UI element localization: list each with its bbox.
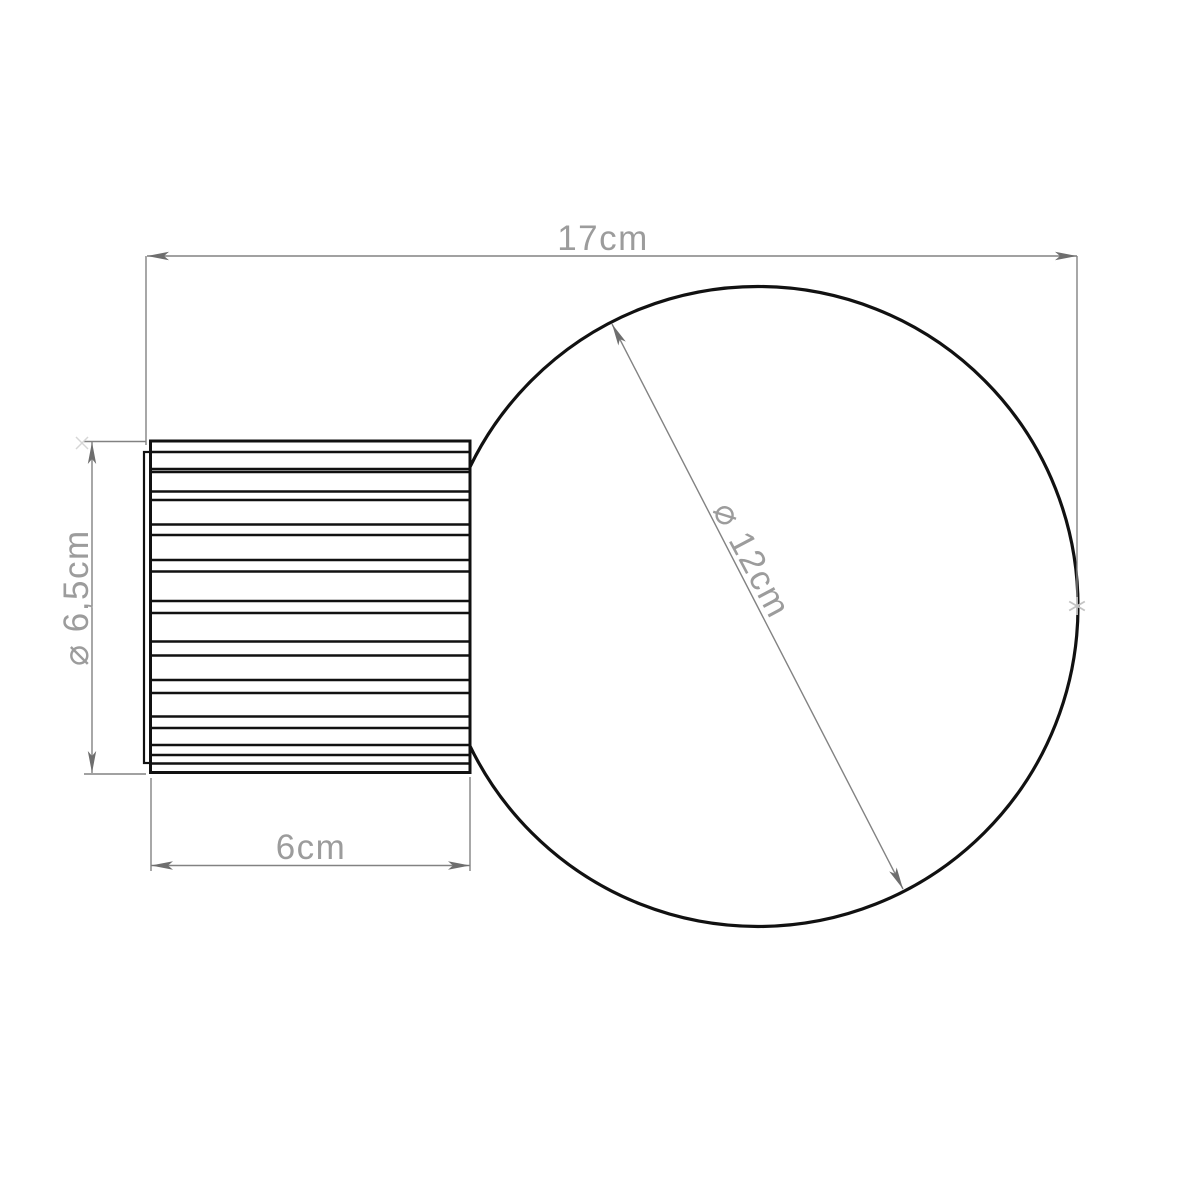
dimension-label-base-depth: 6cm bbox=[276, 828, 347, 867]
snap-star-icon bbox=[1069, 597, 1085, 615]
dimension-base-diameter: ⌀ 6,5cm bbox=[57, 442, 146, 775]
dimension-base-depth: 6cm bbox=[151, 777, 470, 871]
dimension-label-globe-diameter: ⌀ 12cm bbox=[705, 495, 798, 624]
technical-drawing-page: 17cm ⌀ 6,5cm 6cm ⌀ 12cm bbox=[0, 0, 1200, 1200]
dimension-globe-diameter: ⌀ 12cm bbox=[612, 324, 903, 889]
dimension-arrowhead-icon bbox=[889, 868, 907, 891]
dimension-arrowhead-icon bbox=[608, 322, 626, 345]
dimension-label-base-diameter: ⌀ 6,5cm bbox=[57, 529, 96, 666]
technical-drawing-canvas: 17cm ⌀ 6,5cm 6cm ⌀ 12cm bbox=[0, 0, 1200, 1200]
dimension-label-total-width: 17cm bbox=[557, 219, 649, 258]
snap-cross-icon bbox=[76, 437, 88, 449]
